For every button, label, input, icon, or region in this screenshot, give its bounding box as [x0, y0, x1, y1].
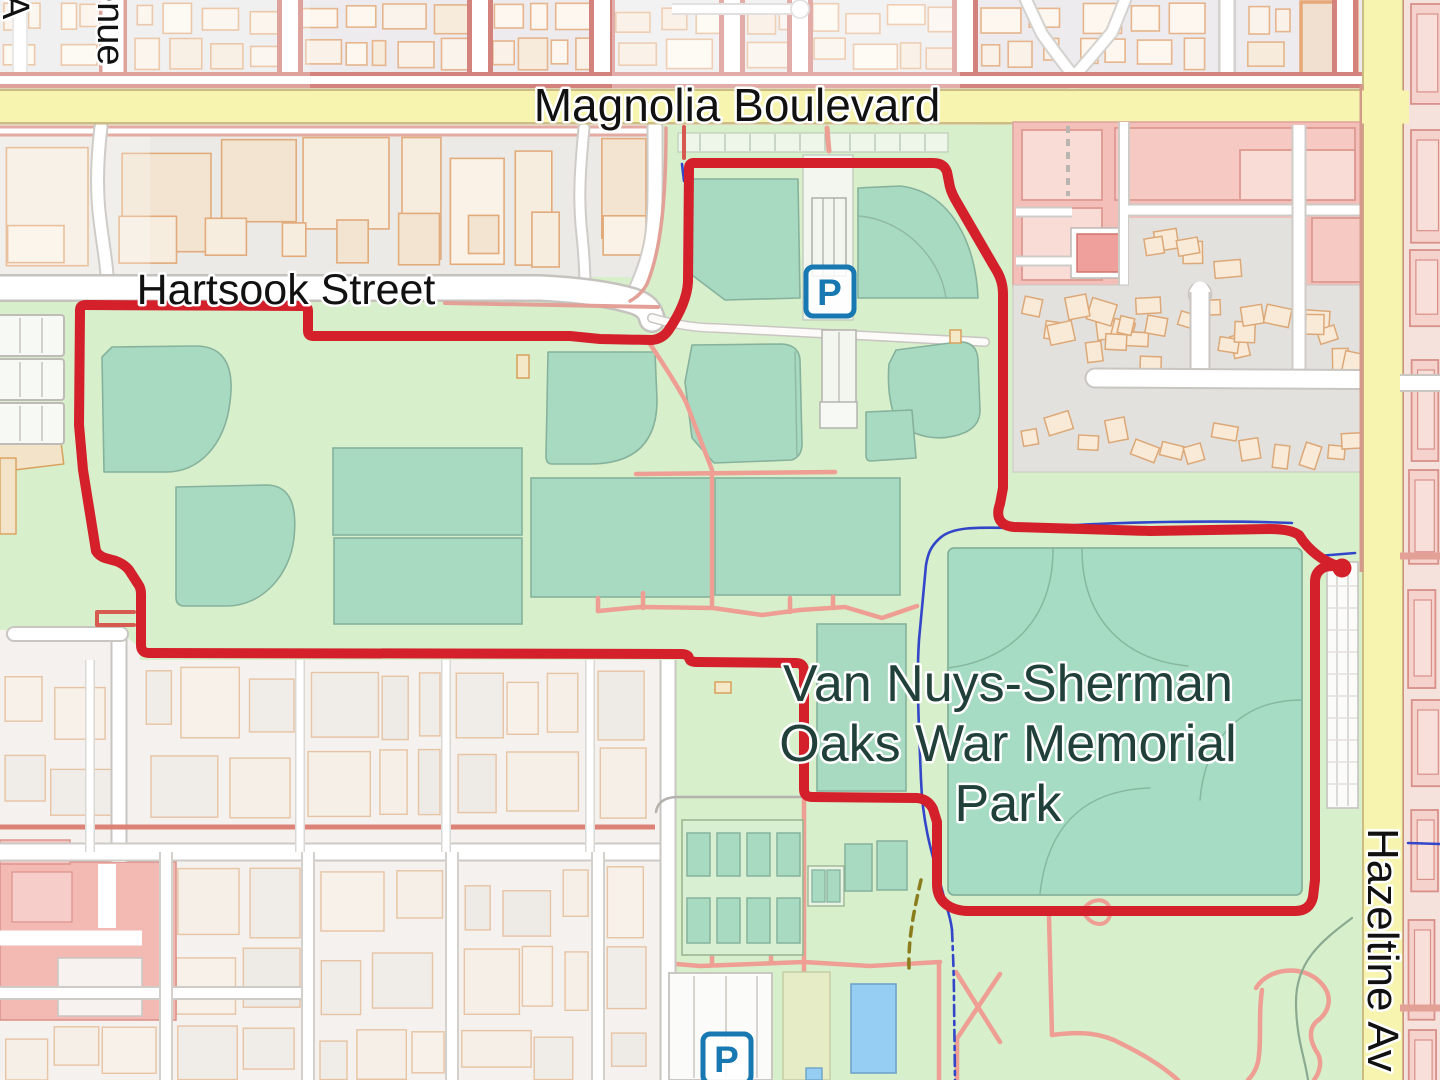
svg-text:Hartsook Street: Hartsook Street [137, 266, 436, 314]
svg-text:Magnolia Boulevard: Magnolia Boulevard [534, 79, 941, 131]
svg-text:Oaks War Memorial: Oaks War Memorial [779, 715, 1236, 773]
svg-text:Hazeltine Av: Hazeltine Av [1358, 828, 1407, 1072]
svg-text:P: P [714, 1039, 739, 1080]
svg-text:Van Nuys-Sherman: Van Nuys-Sherman [783, 655, 1233, 713]
svg-text:Park: Park [955, 775, 1063, 833]
svg-text:P: P [817, 272, 842, 313]
svg-text:A: A [0, 0, 36, 20]
svg-text:venue: venue [89, 0, 131, 66]
